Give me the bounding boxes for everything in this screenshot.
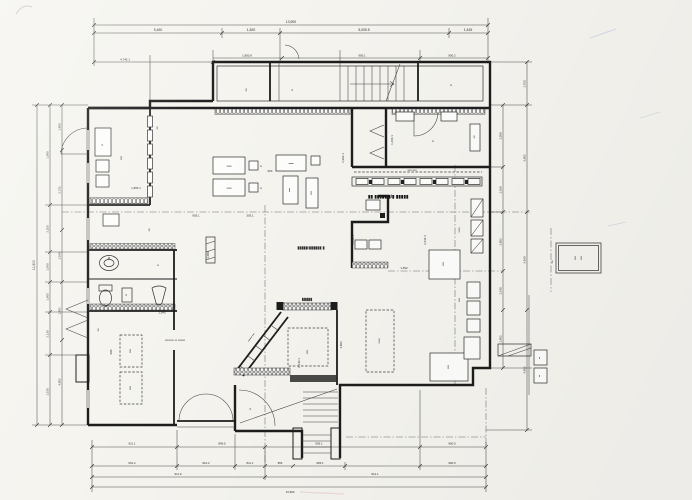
room-label: ▪▪▪ — [244, 88, 248, 91]
dim-text: 900.2 — [448, 54, 456, 58]
dim-text: 900 — [109, 349, 113, 354]
counter-note: ▪▪▪▪ ▪▪▪▪ — [407, 168, 416, 172]
counter-row — [352, 177, 482, 186]
stair-treads-top — [340, 64, 404, 101]
dim-text: 955 — [278, 461, 283, 465]
dim-text: 1,800 — [58, 123, 62, 131]
bold-room-title: ▮▮ ▮▮▮▮▮ ▮/▮ ▮▮▮▮▮ — [368, 194, 409, 199]
pencil-arc — [285, 45, 299, 59]
central-hall: ▪▪▪▪▪ ▪▪▪▪▪ ▪▪ ▪▪ ▪▪▪▪▪ ▪▪▪▪ ▪▪▪▪ 600 1,… — [165, 153, 345, 376]
dim-text: 899.5 — [218, 442, 226, 446]
dim-text: 1,460.1 — [390, 135, 394, 145]
room-label: ▪▪▪ — [155, 126, 159, 129]
chevron-symbol — [370, 125, 384, 137]
dim-text: 2,100 — [46, 225, 50, 233]
room-label: ▪▪ — [450, 83, 452, 87]
equipment-dashed-outline — [288, 328, 328, 366]
urinal-fixture — [152, 286, 166, 305]
pencil-mark — [16, 6, 32, 14]
door-swing-entrance — [239, 390, 275, 426]
table-label: ▪▪▪▪ — [441, 262, 445, 266]
entrance-steps — [303, 392, 338, 422]
note-text: ▪▪▪▪▪▪▪▪▪ ▪▪ ▪▪▪▪▪▪▪ — [165, 338, 185, 342]
dim-text: 2,636.1 — [423, 235, 427, 245]
dim-text: 1,802 — [499, 335, 503, 343]
dimension-chain-left: 11,900 1,980 2,100 1,960 1,900 2,130 1,5… — [32, 103, 88, 427]
dim-text: 1,941.1 — [351, 235, 355, 245]
dimension-chain-top: 13,900 5,460 1,820 5,005.5 1,615 4,745.1… — [92, 18, 490, 101]
room-label: ▪▪ — [248, 408, 252, 410]
wall-hatch-band — [215, 109, 350, 115]
ramp-label: ▪▪▪▪▪▪ ▪▪▪ — [247, 332, 256, 342]
dim-text: 901.2 — [128, 461, 136, 465]
table-label: ▪▪▪▪ — [128, 349, 132, 353]
left-rooms: ▪▪ ▪▪▪▪ ▪▪▪ ▪▪▪ ▪▪ ▪▪ ▪▪▪▪ ▪▪▪▪ ▪▪▪ 900 … — [95, 126, 233, 421]
equipment-label: ▪▪ — [538, 357, 542, 359]
dim-text: 1,960 — [46, 263, 50, 271]
floor-plan-drawing: 13,900 5,460 1,820 5,005.5 1,615 4,745.1… — [0, 0, 692, 500]
room-label: ▪▪ — [432, 139, 434, 143]
equipment-label: ▪▪▪▪▪ — [377, 338, 381, 343]
dim-text: 1,865.1 — [131, 186, 141, 190]
chevron-symbol — [370, 147, 384, 159]
dim-text: 1,592 — [400, 266, 408, 270]
dim-text: 911.9 — [174, 472, 181, 476]
dim-text: 13,900 — [286, 20, 296, 24]
room-label: ▪▪▪▪ — [119, 156, 123, 160]
dim-text: 2,130.1 — [297, 358, 301, 368]
dim-text: 1,802 — [499, 238, 503, 246]
outer-walls — [61, 62, 490, 458]
room-label: ▪▪▪ — [96, 328, 100, 331]
door-swing — [179, 394, 206, 421]
equipment-label: ▪▪▪▪ — [457, 298, 461, 302]
note-text: ▪▪▪ — [550, 260, 554, 263]
equipment-label: ▪▪ — [538, 375, 542, 377]
equipment-label: ▪▪ — [100, 144, 104, 146]
pink-smudge — [300, 492, 344, 494]
dim-text: 4,745.1 — [120, 58, 130, 62]
dim-text: 5,005.5 — [358, 28, 369, 32]
dim-text: 3,960 — [523, 256, 527, 264]
stool-label: ▪▪ — [260, 164, 262, 168]
room-label: ▪▪ — [157, 263, 159, 267]
dim-text: 11,900 — [32, 260, 36, 270]
stool-label: ▪▪ — [260, 186, 262, 190]
dim-text: 911.1 — [128, 442, 135, 446]
bold-note: ▮▮▮▮▮/▮▮▮▮▮▮ ▮ — [297, 246, 324, 250]
dim-text: 2,000 — [206, 251, 210, 259]
dim-text: 13,900 — [286, 490, 295, 494]
entrance-genkan: ▪▪ — [239, 389, 340, 459]
dim-text: 1,802 — [339, 341, 343, 349]
dim-text: 1,900 — [46, 293, 50, 301]
blue-pencil-stroke — [590, 29, 616, 38]
dim-text: 900.5 — [448, 442, 456, 446]
dim-text: 600 — [268, 169, 273, 173]
dim-text: 1,820 — [247, 28, 256, 32]
note-label: ▪▪▪▪ — [579, 256, 583, 260]
kitchen-tables: ▪▪▪▪ ▪▪▪▪ — [120, 335, 142, 404]
equipment-label: ▪▪▪▪▪ — [457, 227, 461, 232]
dim-text: 900.5 — [448, 461, 456, 465]
door-swing-top-right-room — [414, 112, 438, 136]
dim-text: 905.1 — [316, 461, 324, 465]
dim-text: 811.1 — [246, 461, 253, 465]
dim-text: 912.1 — [371, 472, 379, 476]
right-wall-equipment: ▪▪▪▪▪ ▪▪▪▪ — [457, 199, 483, 359]
sink-fixture — [100, 256, 119, 271]
table-label: ▪▪▪▪ — [128, 386, 132, 390]
dim-text: 905.1 — [192, 214, 200, 218]
dim-text: 1,981.1 — [341, 153, 345, 163]
door-swing-left — [61, 128, 88, 154]
door-swing — [206, 394, 233, 421]
dim-text: 5,460 — [154, 28, 163, 32]
room-label: ▪▪ — [124, 294, 128, 296]
equipment-box — [95, 128, 111, 156]
wall-band — [290, 375, 337, 382]
dim-text: 2,732 — [58, 186, 62, 194]
table-label: ▪▪▪▪▪ — [226, 164, 231, 168]
equipment-label: ▪▪▪▪ — [305, 350, 309, 354]
dim-text: 4,802 — [523, 366, 527, 374]
blue-pencil-stroke — [608, 222, 626, 226]
scanned-floor-plan-page: 13,900 5,460 1,820 5,005.5 1,615 4,745.1… — [0, 0, 692, 500]
dim-text: 1,800.8 — [242, 54, 252, 58]
note-label: ▪▪▪▪ — [573, 256, 577, 260]
exterior-right-objects: ▪▪ ▪▪ ▪▪▪ ▪▪▪▪ ▪▪▪▪ — [498, 243, 601, 395]
perron-band: ▮▮▮▮▮ — [277, 298, 338, 311]
dim-text: 905.1 — [315, 442, 323, 446]
equipment-label: ▪▪▪ — [472, 135, 476, 138]
dim-text: 1,540 — [158, 311, 166, 315]
dim-text: 900.1 — [358, 54, 366, 58]
table-label: ▪▪▪▪▪ — [226, 186, 231, 190]
table-cluster-2: ▪▪▪▪▪ ▪▪▪▪ ▪▪▪▪ — [276, 155, 320, 208]
dim-text: 1,750 — [523, 80, 527, 88]
dim-text: 1,960 — [58, 252, 62, 260]
toilet-fixture — [99, 285, 112, 306]
bold-note: ▮▮▮▮▮ — [302, 298, 312, 302]
dim-text: 1,360 — [499, 186, 503, 194]
table-cluster-1: ▪▪▪▪▪ ▪▪▪▪▪ ▪▪ ▪▪ — [213, 157, 262, 196]
dim-text: 4,802 — [58, 378, 62, 386]
table-label: ▪▪▪▪ — [288, 188, 292, 192]
table-label: ▪▪▪▪ — [446, 365, 450, 369]
detached-note-box: ▪▪▪▪ ▪▪▪▪ — [556, 243, 601, 273]
blue-pencil-stroke — [640, 112, 660, 118]
genkan-diagonal — [240, 389, 337, 423]
counter-band — [234, 368, 290, 375]
scattered-dim-texts: 1,540 905.1 2,130.1 1,802 — [158, 214, 343, 368]
dim-text: 1,980 — [46, 151, 50, 159]
dim-text: 303.1 — [246, 214, 254, 218]
table-label: ▪▪▪▪▪ — [288, 162, 293, 166]
dim-text: 1,802 — [58, 307, 62, 315]
top-extension-block: ▪▪▪ ▪▪ ▪▪ — [88, 62, 490, 115]
casement-window-flag — [66, 320, 88, 338]
dim-text: 910.2 — [202, 461, 210, 465]
dim-text: 1,900 — [499, 132, 503, 140]
casement-window-flag — [66, 300, 88, 318]
dim-text: 1,520 — [46, 388, 50, 396]
table-label: ▪▪▪▪ — [309, 191, 313, 195]
dim-text: 1,615 — [464, 28, 473, 32]
room-label: ▪▪▪ — [147, 228, 151, 231]
dim-text: 1,240 — [499, 287, 503, 295]
dim-text: 3,802 — [523, 154, 527, 162]
ramp: ▪▪▪▪▪▪ ▪▪▪ — [236, 312, 288, 376]
dim-text: 2,130 — [46, 330, 50, 338]
room-label: ▪▪ — [290, 89, 294, 91]
